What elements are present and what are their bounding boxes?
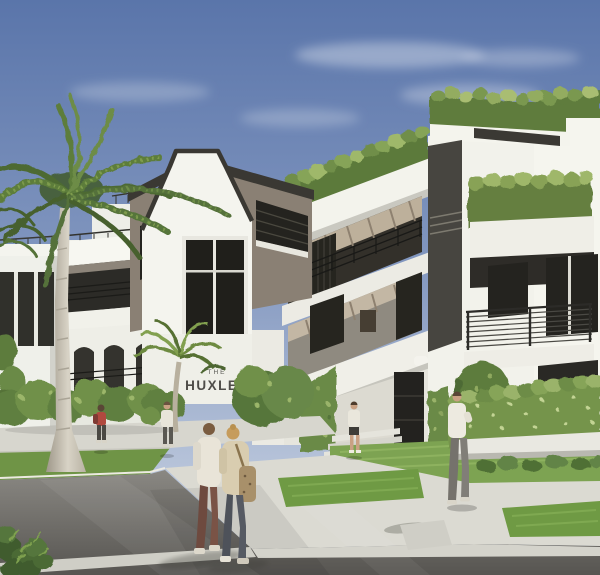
- window-mullion: [568, 256, 571, 334]
- leg: [169, 427, 173, 444]
- shadow: [447, 505, 477, 512]
- mid-balcony-window: [396, 272, 422, 340]
- shadow: [160, 454, 174, 458]
- shoe: [220, 556, 231, 562]
- corner-balcony-recess: [428, 140, 462, 352]
- bag-speckle: [244, 475, 247, 478]
- leg: [163, 427, 167, 444]
- leg: [102, 425, 106, 440]
- shoe: [237, 558, 249, 564]
- shirt: [348, 410, 360, 427]
- shoe: [102, 440, 107, 443]
- bag-speckle: [249, 483, 252, 486]
- shoe: [447, 500, 457, 505]
- paver-stripe-connector: [400, 520, 452, 550]
- shoe: [194, 548, 205, 554]
- shoe: [349, 450, 354, 453]
- bag-speckle: [243, 491, 246, 494]
- shoe: [356, 450, 361, 453]
- arm: [193, 442, 201, 470]
- shoe: [169, 444, 174, 447]
- hedge-shadow: [5, 425, 175, 435]
- arch-opening: [104, 345, 124, 390]
- arm: [219, 448, 227, 474]
- shirt: [161, 410, 173, 427]
- far-left-mullion: [14, 272, 18, 346]
- head: [98, 405, 105, 412]
- hair-bun: [230, 424, 236, 430]
- living-wall-right: [428, 386, 448, 450]
- white-shirt: [448, 403, 466, 438]
- shoe: [460, 497, 470, 502]
- gable-window-mullion: [213, 240, 216, 340]
- leg: [356, 435, 360, 450]
- wall-artwork: [360, 310, 376, 332]
- shadow: [346, 456, 362, 460]
- scene-svg: THE HUXLEY: [0, 0, 600, 575]
- shoe: [96, 440, 101, 443]
- shadow: [94, 450, 108, 454]
- head: [203, 423, 215, 435]
- far-left-mullion: [34, 272, 38, 346]
- shorts: [349, 427, 359, 435]
- gable-window-transom: [186, 270, 244, 273]
- leg: [97, 425, 101, 440]
- rendering-canvas: THE HUXLEY: [0, 0, 600, 575]
- backpack: [93, 414, 98, 424]
- shoe: [162, 444, 167, 447]
- leg: [350, 435, 354, 450]
- shoe: [209, 545, 220, 551]
